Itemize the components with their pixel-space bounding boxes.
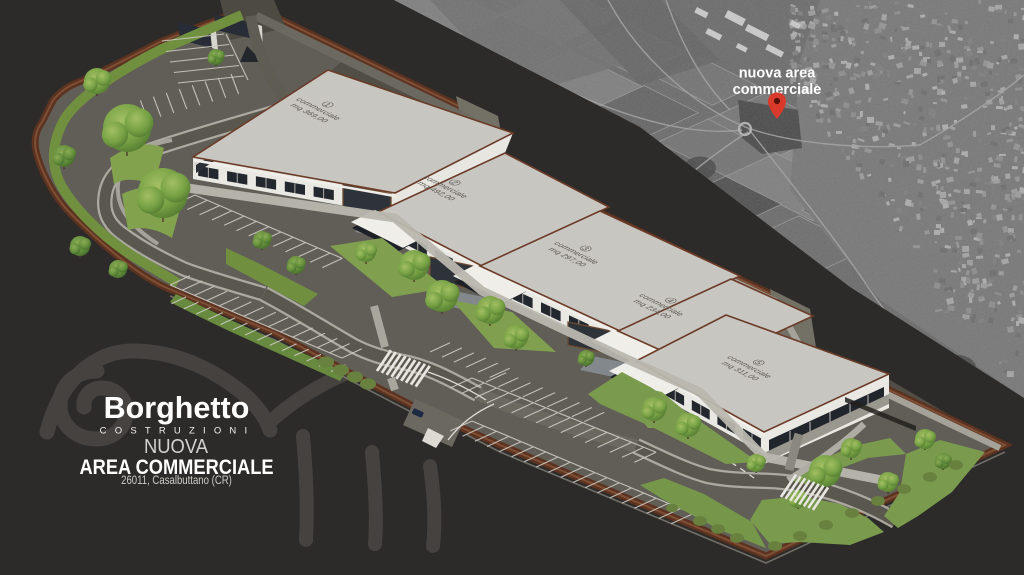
svg-text:nuova area: nuova area [739, 66, 816, 82]
svg-text:Borghetto: Borghetto [104, 391, 250, 425]
svg-text:COSTRUZIONI: COSTRUZIONI [100, 426, 256, 437]
svg-text:26011, Casalbuttano (CR): 26011, Casalbuttano (CR) [121, 474, 232, 487]
